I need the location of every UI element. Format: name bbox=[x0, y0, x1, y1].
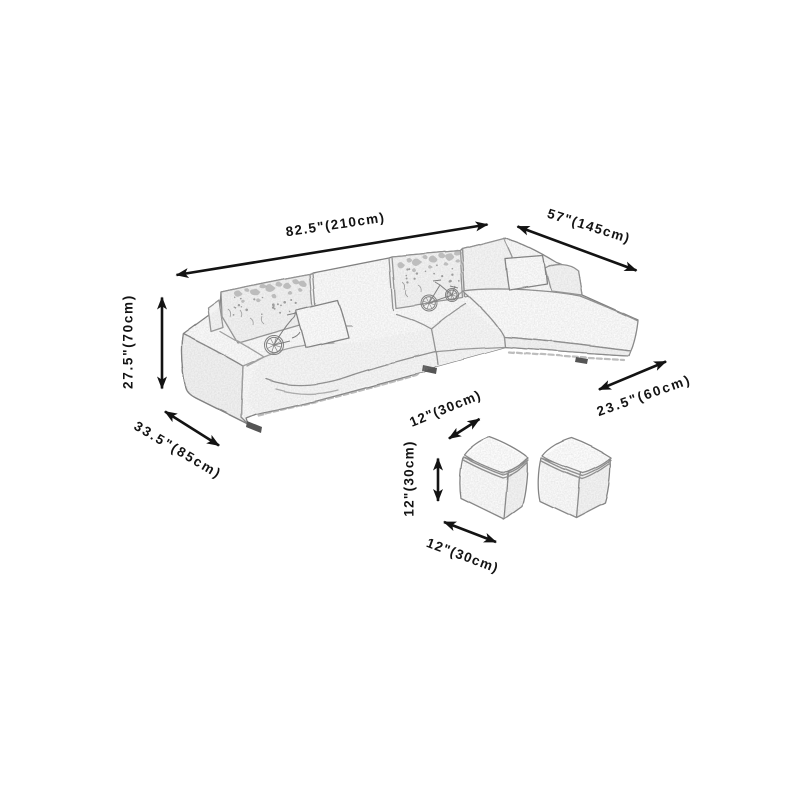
svg-text:27.5"(70cm): 27.5"(70cm) bbox=[121, 294, 136, 389]
svg-text:12"(30cm): 12"(30cm) bbox=[424, 535, 501, 576]
svg-text:33.5"(85cm): 33.5"(85cm) bbox=[131, 418, 224, 481]
svg-text:82.5"(210cm): 82.5"(210cm) bbox=[285, 210, 387, 240]
svg-text:57"(145cm): 57"(145cm) bbox=[546, 206, 633, 246]
svg-text:23.5"(60cm): 23.5"(60cm) bbox=[595, 372, 694, 419]
svg-text:12"(30cm): 12"(30cm) bbox=[402, 440, 417, 516]
